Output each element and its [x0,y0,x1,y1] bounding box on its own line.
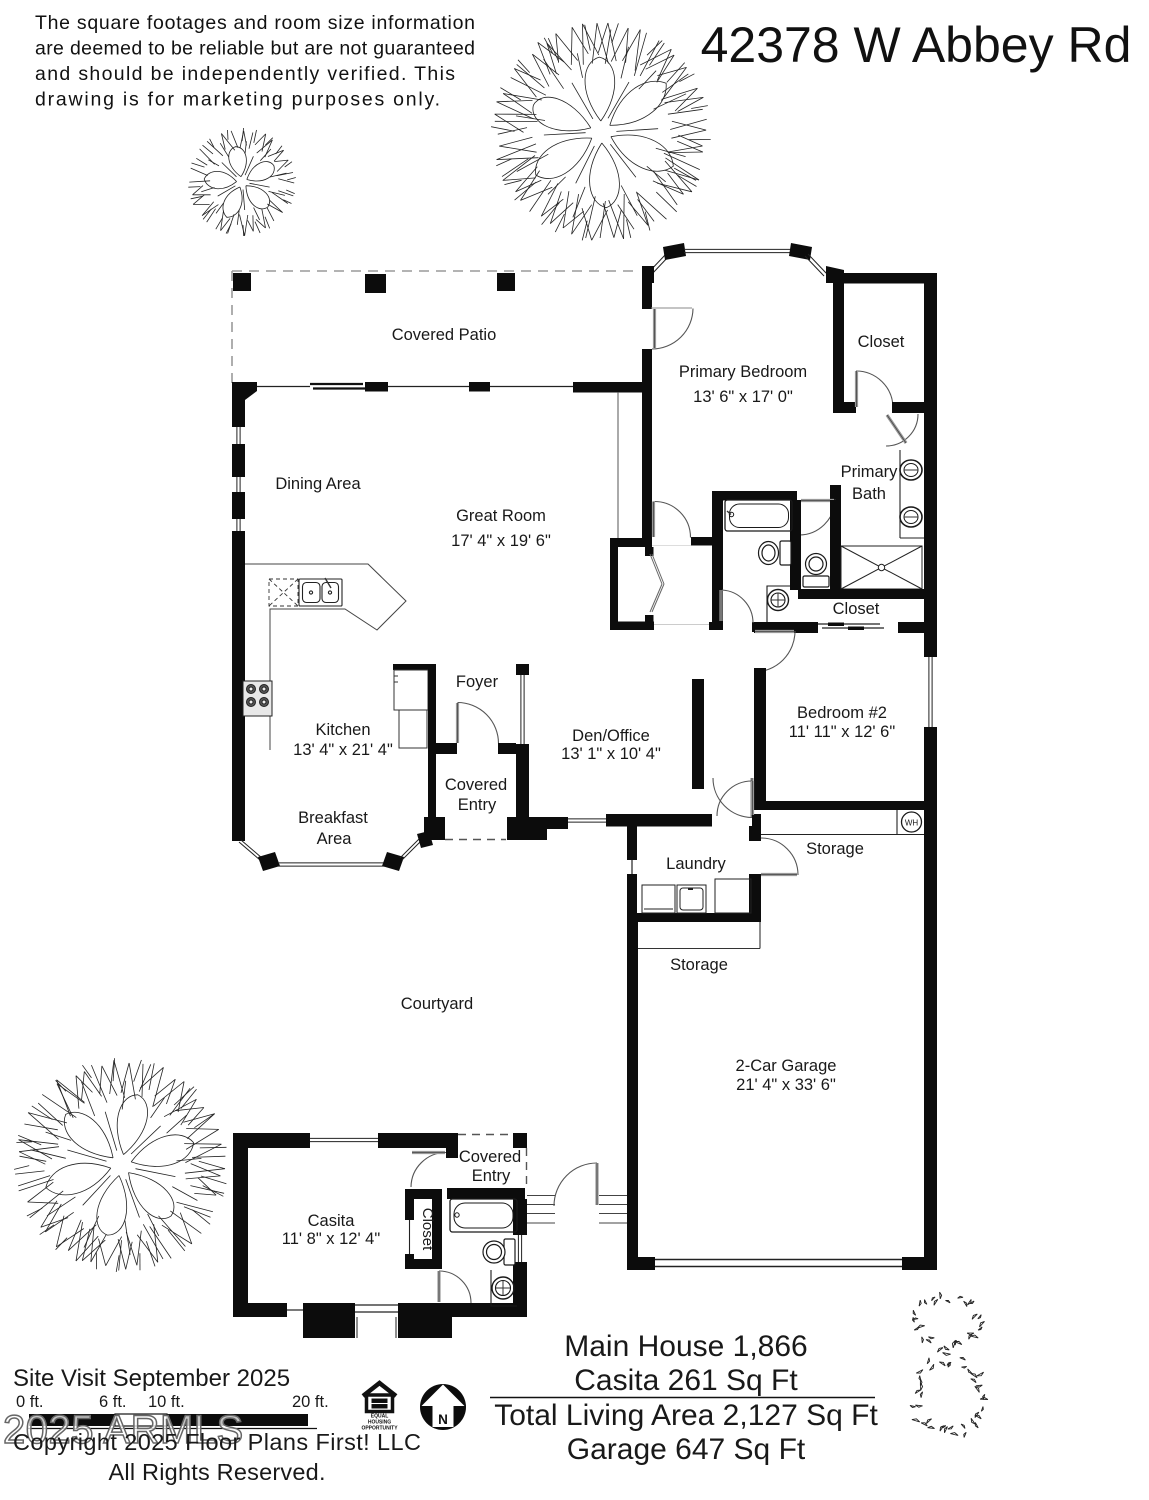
svg-text:Breakfast: Breakfast [298,809,368,827]
svg-text:Entry: Entry [458,796,497,814]
svg-text:13' 6" x 17' 0": 13' 6" x 17' 0" [693,388,793,406]
svg-text:Den/Office: Den/Office [572,727,650,745]
svg-text:Dining Area: Dining Area [275,475,361,493]
svg-text:Area: Area [317,830,353,848]
svg-text:Entry: Entry [472,1167,511,1185]
svg-text:42378 W Abbey Rd: 42378 W Abbey Rd [701,17,1132,73]
svg-text:Laundry: Laundry [666,855,726,873]
svg-text:WH: WH [905,819,919,828]
svg-text:OPPORTUNITY: OPPORTUNITY [361,1426,398,1432]
svg-text:Primary: Primary [841,463,899,481]
svg-text:11' 8" x 12' 4": 11' 8" x 12' 4" [282,1230,381,1248]
svg-text:Storage: Storage [670,956,728,974]
svg-text:Casita 261 Sq Ft: Casita 261 Sq Ft [574,1364,798,1397]
svg-text:Bedroom #2: Bedroom #2 [797,704,887,722]
svg-text:Copyright 2025 Floor Plans Fir: Copyright 2025 Floor Plans First! LLC [13,1429,421,1455]
svg-text:11' 11" x 12' 6": 11' 11" x 12' 6" [789,723,896,741]
svg-text:are deemed to be reliable but: are deemed to be reliable but are not gu… [35,38,475,60]
svg-text:Covered: Covered [445,776,507,794]
svg-text:All Rights Reserved.: All Rights Reserved. [109,1459,326,1485]
svg-text:20 ft.: 20 ft. [292,1393,329,1411]
svg-text:and should be independently ve: and should be independently verified. Th… [35,63,455,85]
svg-text:Courtyard: Courtyard [401,995,473,1013]
svg-text:Covered: Covered [459,1148,521,1166]
svg-text:13' 4" x 21' 4": 13' 4" x 21' 4" [293,741,393,759]
svg-text:Foyer: Foyer [456,673,499,691]
svg-text:The square footages and room s: The square footages and room size inform… [35,12,475,34]
svg-text:Closet: Closet [419,1208,436,1251]
svg-text:drawing is for marketing purpo: drawing is for marketing purposes only. [35,89,440,111]
svg-text:13' 1" x 10' 4": 13' 1" x 10' 4" [561,745,661,763]
svg-text:Site Visit September 2025: Site Visit September 2025 [13,1365,290,1392]
svg-text:N: N [438,1412,448,1427]
svg-text:17' 4" x 19' 6": 17' 4" x 19' 6" [451,532,551,550]
svg-text:Closet: Closet [858,333,905,351]
svg-text:Storage: Storage [806,840,864,858]
svg-text:Closet: Closet [833,600,880,618]
svg-text:Total Living Area 2,127 Sq Ft: Total Living Area 2,127 Sq Ft [494,1399,878,1432]
svg-text:Casita: Casita [308,1212,356,1230]
svg-text:Main House 1,866: Main House 1,866 [564,1330,808,1363]
svg-text:Garage 647 Sq Ft: Garage 647 Sq Ft [567,1433,806,1466]
svg-text:Bath: Bath [852,485,886,503]
svg-text:Covered Patio: Covered Patio [392,326,497,344]
svg-text:Primary Bedroom: Primary Bedroom [679,363,807,381]
svg-text:21' 4" x 33' 6": 21' 4" x 33' 6" [736,1076,836,1094]
svg-text:2-Car Garage: 2-Car Garage [736,1057,837,1075]
svg-text:Great Room: Great Room [456,507,546,525]
svg-text:Kitchen: Kitchen [315,721,370,739]
